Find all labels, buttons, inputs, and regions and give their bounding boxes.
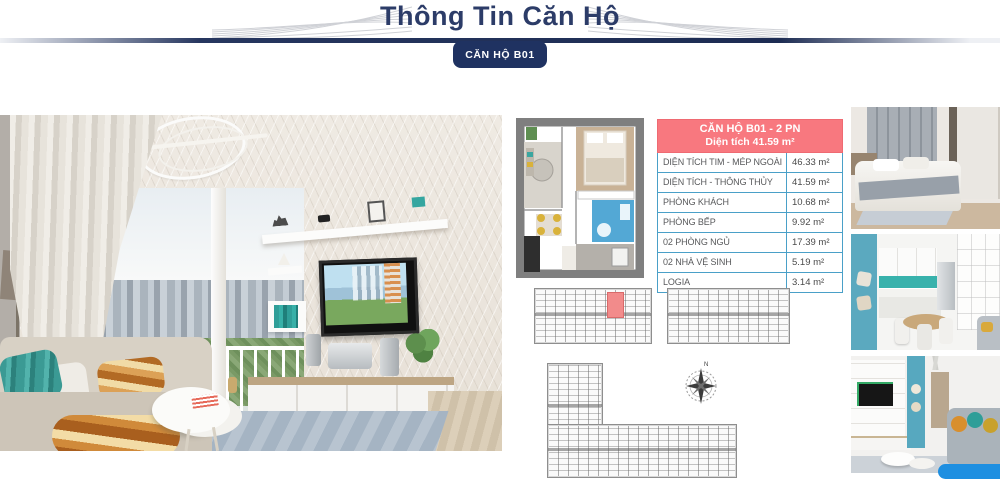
pillow — [873, 159, 899, 171]
spec-value: 10.68 m² — [786, 193, 842, 212]
spec-value: 9.92 m² — [786, 213, 842, 232]
speaker-left — [306, 334, 321, 366]
upper-cabinets — [879, 248, 937, 276]
living-room-thumbnail[interactable] — [851, 356, 1000, 473]
table-row: DIỆN TÍCH - THÔNG THỦY41.59 m² — [658, 172, 842, 192]
mustard-pillow — [983, 418, 998, 433]
coffee-table — [909, 458, 935, 469]
books — [274, 305, 298, 328]
tv — [857, 382, 893, 406]
compass-rose: N — [678, 360, 724, 406]
cube-shelf — [268, 301, 306, 332]
spec-label: 02 NHÀ VỆ SINH — [658, 253, 786, 272]
pillow — [903, 157, 929, 169]
fern-plant — [405, 329, 441, 365]
spec-value: 41.59 m² — [786, 173, 842, 192]
spec-value: 46.33 m² — [786, 153, 842, 172]
bedroom-thumbnail[interactable] — [851, 107, 1000, 229]
spec-value: 17.39 m² — [786, 233, 842, 252]
unit-b01-floor-plan[interactable] — [516, 118, 644, 278]
dining-chair — [939, 318, 953, 344]
tv — [319, 257, 420, 336]
table-row: 02 PHÒNG NGỦ17.39 m² — [658, 232, 842, 252]
tv-cabinet-top — [248, 377, 454, 385]
coffee-table — [152, 387, 230, 433]
spec-table-title: CĂN HỘ B01 - 2 PN — [658, 123, 842, 135]
table-row: 02 NHÀ VỆ SINH5.19 m² — [658, 252, 842, 272]
highlighted-unit-b01 — [607, 292, 624, 318]
camera-decor — [318, 214, 331, 222]
site-plan-horizontal-wing — [547, 424, 737, 478]
vase — [228, 377, 237, 393]
spec-label: DIỆN TÍCH - THÔNG THỦY — [658, 173, 786, 192]
teal-accent-wall — [851, 234, 877, 350]
spec-label: PHÒNG KHÁCH — [658, 193, 786, 212]
spec-table-body: DIỆN TÍCH TIM - MÉP NGOÀI46.33 m²DIỆN TÍ… — [657, 153, 843, 293]
spec-label: PHÒNG BẾP — [658, 213, 786, 232]
wall-decal — [911, 402, 921, 412]
unit-b01-tab[interactable]: CĂN HỘ B01 — [453, 41, 547, 68]
soundbar — [328, 343, 372, 369]
chat-button[interactable] — [938, 464, 1000, 479]
spec-table-header: CĂN HỘ B01 - 2 PN Diện tích 41.59 m² — [657, 119, 843, 153]
spec-value: 3.14 m² — [786, 273, 842, 292]
yellow-pillow — [981, 322, 993, 332]
kitchen-dining-thumbnail[interactable] — [851, 234, 1000, 350]
main-living-room-photo[interactable] — [0, 115, 502, 451]
teal-pillow — [967, 412, 983, 428]
wall-decal — [911, 384, 921, 394]
spec-label: 02 PHÒNG NGỦ — [658, 233, 786, 252]
wall-decal — [856, 271, 872, 287]
apartment-info-page: Thông Tin Căn Hộ CĂN HỘ B01 — [0, 0, 1000, 491]
dining-chair — [917, 324, 932, 350]
teal-backsplash — [879, 276, 937, 288]
fridge — [937, 262, 955, 310]
floor-plan-wing-right — [667, 288, 790, 344]
spec-table-subtitle: Diện tích 41.59 m² — [658, 136, 842, 148]
apartment-spec-table: CĂN HỘ B01 - 2 PN Diện tích 41.59 m² DIỆ… — [657, 119, 843, 293]
page-title: Thông Tin Căn Hộ — [0, 1, 1000, 32]
photo-frame-decor — [367, 200, 386, 222]
table-row: PHÒNG KHÁCH10.68 m² — [658, 192, 842, 212]
tv-screen-buildings — [352, 266, 383, 301]
spec-label: DIỆN TÍCH TIM - MÉP NGOÀI — [658, 153, 786, 172]
floor-plan-wing-left — [534, 288, 652, 344]
table-row: PHÒNG BẾP9.92 m² — [658, 212, 842, 232]
speaker-right — [380, 338, 399, 376]
table-row: DIỆN TÍCH TIM - MÉP NGOÀI46.33 m² — [658, 153, 842, 172]
tv-screen-tower — [384, 263, 401, 304]
sailboat-decor — [278, 253, 290, 265]
wall-decal — [856, 295, 872, 311]
tv-cabinet — [851, 438, 911, 450]
compass-north-label: N — [704, 362, 708, 368]
spec-value: 5.19 m² — [786, 253, 842, 272]
orange-pillow — [951, 416, 967, 432]
teal-box-decor — [412, 196, 426, 207]
